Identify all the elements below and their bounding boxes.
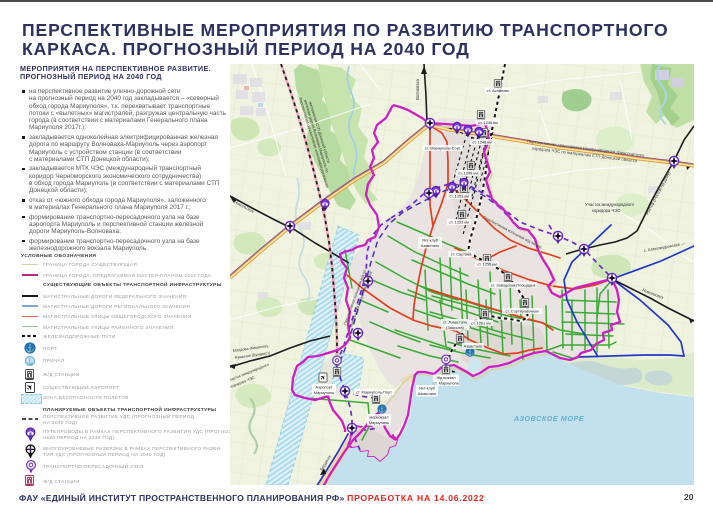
svg-text:ст. Мариуполь-Сорт.: ст. Мариуполь-Сорт.: [425, 146, 461, 151]
svg-text:ст. 1251 км: ст. 1251 км: [449, 194, 469, 199]
svg-text:морвокзал: морвокзал: [369, 415, 388, 420]
svg-text:ст. Азовсталь: ст. Азовсталь: [443, 320, 467, 325]
svg-text:Мариуполь: Мариуполь: [369, 420, 389, 425]
svg-text:ст. 1248 км: ст. 1248 км: [472, 140, 492, 145]
svg-text:⚓: ⚓: [25, 343, 35, 353]
svg-text:Аэропорт: Аэропорт: [315, 385, 332, 390]
svg-text:Мариуполь: Мариуполь: [314, 390, 334, 395]
svg-text:ст. Сортировочная: ст. Сортировочная: [505, 309, 538, 314]
svg-text:ст. Мариуполь-Порт: ст. Мариуполь-Порт: [356, 390, 392, 395]
svg-text:Яхт-клуб: Яхт-клуб: [422, 238, 439, 243]
svg-text:ст. Мариуполь: ст. Мариуполь: [433, 381, 459, 386]
svg-text:Волноваха: Волноваха: [415, 78, 420, 100]
svg-text:Яхт-клуб: Яхт-клуб: [419, 386, 436, 391]
svg-text:Жд вокзал: Жд вокзал: [436, 375, 455, 380]
svg-text:ст. Заводская Площадка: ст. Заводская Площадка: [491, 283, 536, 288]
svg-text:Азовсталь: Азовсталь: [418, 391, 437, 396]
svg-text:⚓: ⚓: [26, 357, 33, 365]
svg-text:ст. 1261 км: ст. 1261 км: [471, 321, 491, 326]
svg-text:ст. 1253 км: ст. 1253 км: [449, 220, 469, 225]
svg-text:Азовсталь: Азовсталь: [464, 344, 483, 349]
svg-text:ст. Сартана: ст. Сартана: [451, 252, 473, 257]
svg-text:ст. Асланово: ст. Асланово: [487, 88, 510, 93]
svg-text:ст. 1249 км: ст. 1249 км: [458, 171, 478, 176]
svg-text:Азовсталь: Азовсталь: [421, 243, 440, 248]
svg-text:Участок международного: Участок международного: [585, 202, 635, 207]
svg-text:(Закрыта): (Закрыта): [446, 325, 464, 330]
svg-text:ст. 1256 км: ст. 1256 км: [477, 262, 497, 267]
svg-text:ст. 1246 км: ст. 1246 км: [478, 120, 498, 125]
svg-text:коридора ЧЭС: коридора ЧЭС: [592, 208, 620, 213]
svg-text:АЗОВСКОЕ МОРЕ: АЗОВСКОЕ МОРЕ: [513, 414, 584, 423]
